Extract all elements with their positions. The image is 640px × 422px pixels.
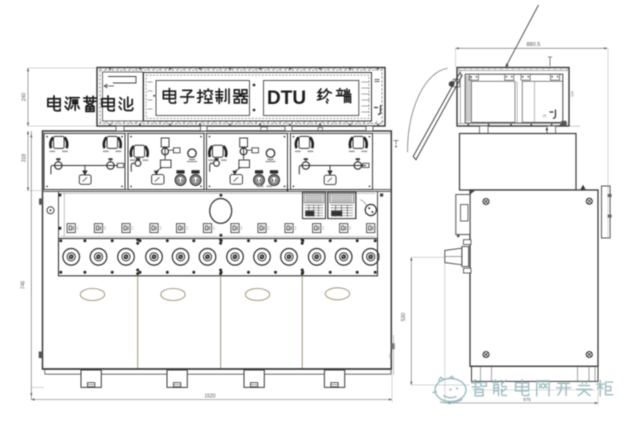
svg-text:DTU: DTU (267, 88, 306, 109)
svg-text:240: 240 (22, 93, 28, 102)
svg-text:25: 25 (543, 114, 547, 118)
svg-text:316: 316 (571, 91, 575, 97)
svg-text:746: 746 (21, 281, 27, 290)
svg-text:975: 975 (523, 397, 531, 402)
svg-text:530: 530 (401, 313, 407, 322)
svg-text:318: 318 (22, 154, 28, 163)
svg-text:1520: 1520 (204, 394, 215, 400)
svg-text:880.5: 880.5 (527, 42, 541, 48)
svg-text:350: 350 (389, 353, 393, 359)
